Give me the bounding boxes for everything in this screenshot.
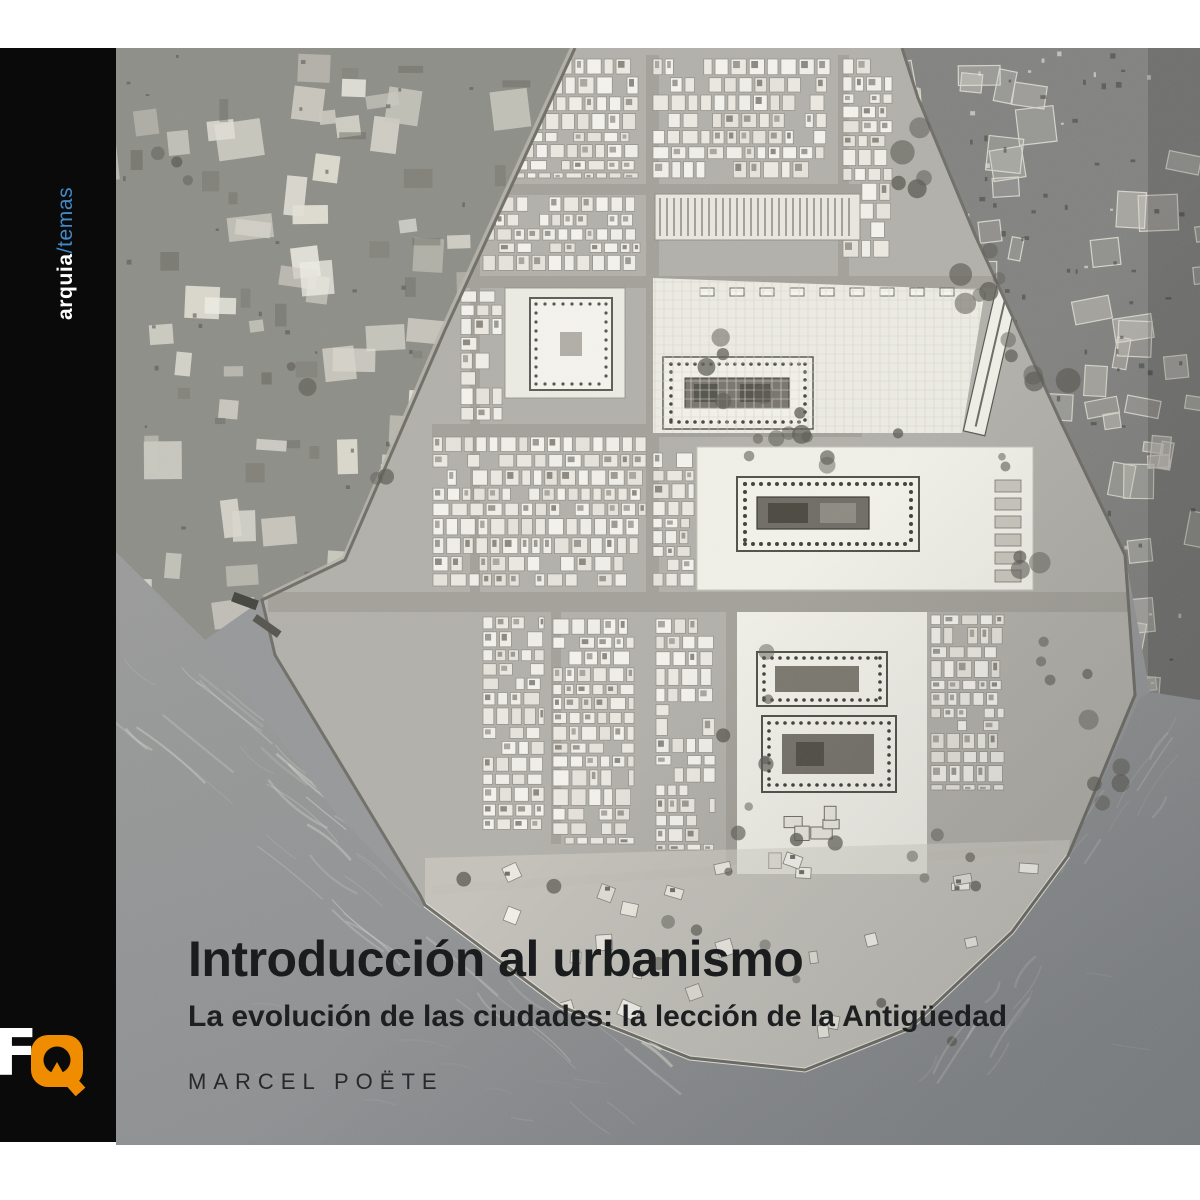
page-subtitle: La evolución de las ciudades: la lección… bbox=[188, 1000, 1198, 1033]
page-title: Introducción al urbanismo bbox=[188, 932, 1198, 986]
brand-arquia: arquia bbox=[54, 253, 77, 320]
cover-photo: Introducción al urbanismo La evolución d… bbox=[116, 48, 1200, 1145]
brand-temas: temas bbox=[54, 187, 77, 247]
author-name: MARCEL POËTE bbox=[188, 1069, 1198, 1095]
arquia-temas-brand: arquia/temas bbox=[52, 187, 79, 320]
spine-bar: arquia/temas F bbox=[0, 48, 116, 1142]
brand-slash: / bbox=[54, 247, 77, 253]
logo-letter-q-icon bbox=[30, 1033, 88, 1097]
fq-logo: F bbox=[0, 1032, 116, 1144]
title-block: Introducción al urbanismo La evolución d… bbox=[188, 932, 1198, 1095]
book-cover: Introducción al urbanismo La evolución d… bbox=[0, 0, 1200, 1200]
